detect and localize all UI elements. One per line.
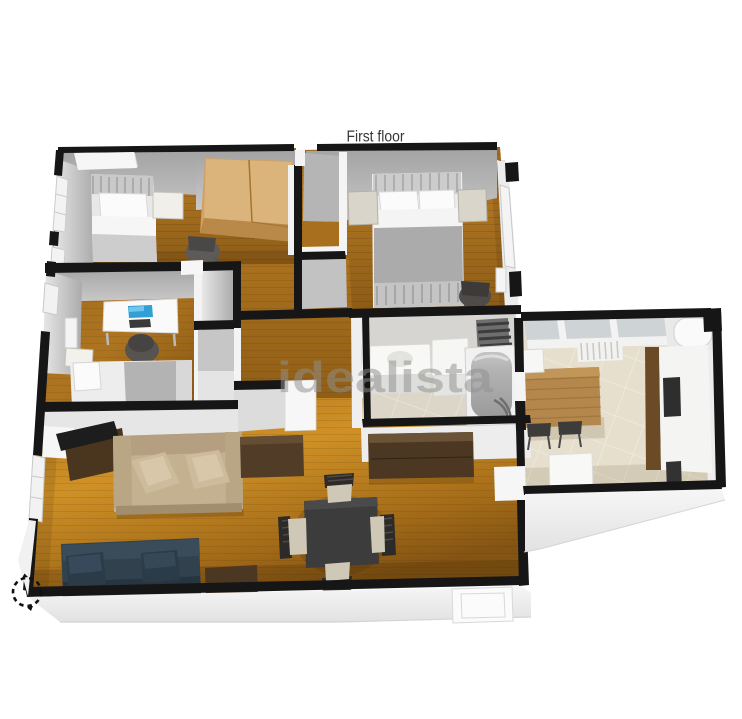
svg-text:idealista: idealista xyxy=(277,353,494,402)
svg-text:First floor: First floor xyxy=(347,129,405,146)
